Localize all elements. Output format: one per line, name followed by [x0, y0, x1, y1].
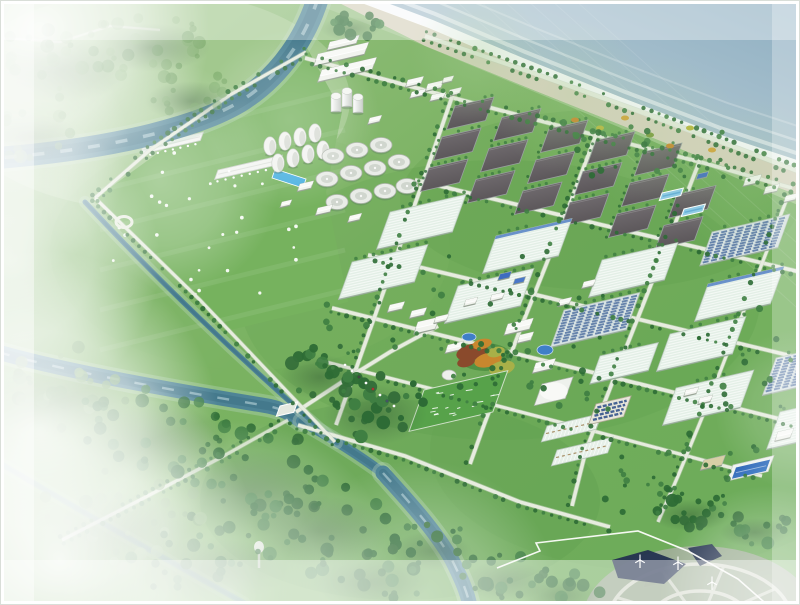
tree — [610, 295, 614, 299]
tree — [403, 218, 407, 222]
tree — [319, 431, 322, 434]
tree — [380, 251, 384, 255]
tree — [605, 406, 611, 412]
tree — [517, 208, 520, 211]
tree — [544, 249, 549, 254]
tree — [666, 450, 672, 456]
tree — [329, 310, 332, 313]
tree — [676, 465, 679, 468]
tree — [728, 275, 732, 279]
tree — [384, 272, 388, 276]
tree — [575, 303, 579, 307]
tree — [526, 296, 530, 300]
tree — [700, 404, 705, 409]
tree — [420, 270, 425, 275]
tree — [724, 475, 728, 479]
car — [379, 394, 382, 397]
tree — [478, 277, 482, 281]
tree — [496, 374, 500, 378]
tree — [578, 379, 583, 384]
tree — [484, 348, 489, 353]
tree — [367, 318, 371, 322]
tree — [585, 397, 590, 402]
tree — [496, 348, 501, 353]
tree — [431, 287, 436, 292]
tree — [331, 366, 335, 370]
tree — [655, 511, 660, 516]
tree — [354, 257, 358, 261]
tree — [537, 419, 541, 423]
tree — [604, 255, 608, 259]
tree — [376, 371, 386, 381]
tree — [584, 301, 588, 305]
tree — [486, 275, 490, 279]
clarifier-hub — [384, 190, 386, 192]
clarifier-hub — [406, 185, 408, 187]
tree — [374, 79, 379, 84]
tree — [623, 233, 627, 237]
clarifier-hub — [380, 144, 382, 146]
tree — [363, 322, 370, 329]
tree — [756, 305, 763, 312]
tree — [394, 381, 399, 386]
tree — [666, 494, 679, 507]
tree — [618, 317, 623, 322]
tree — [677, 396, 681, 400]
tree — [308, 419, 312, 423]
tree — [670, 515, 679, 524]
tree — [322, 363, 327, 368]
tree — [651, 266, 656, 271]
tree — [416, 243, 420, 247]
tree — [573, 187, 576, 190]
tree — [309, 344, 318, 353]
tree — [521, 415, 525, 419]
clarifier-hub — [336, 201, 338, 203]
clarifier-hub — [360, 195, 362, 197]
tree — [354, 430, 367, 443]
tree — [565, 196, 570, 201]
tree — [338, 344, 343, 349]
tree — [680, 492, 684, 496]
tree — [478, 421, 482, 425]
tree — [554, 227, 558, 231]
tree — [422, 176, 425, 179]
tree — [352, 444, 356, 448]
tree — [465, 400, 468, 403]
tree — [388, 391, 401, 404]
tree — [697, 412, 702, 417]
tree — [196, 301, 199, 304]
tree — [541, 363, 545, 367]
tree — [612, 380, 617, 385]
tree — [432, 152, 435, 155]
tree — [650, 325, 654, 329]
clarifier-hub — [398, 161, 400, 163]
tree — [579, 367, 586, 374]
tree — [679, 458, 682, 461]
tree — [625, 208, 628, 211]
tree — [356, 348, 361, 353]
tree — [548, 300, 552, 304]
tree — [469, 196, 472, 199]
tree — [657, 491, 663, 497]
tree — [424, 170, 427, 173]
tree — [499, 366, 503, 370]
tree — [505, 410, 509, 414]
tree — [355, 372, 358, 375]
tree — [681, 332, 685, 336]
tree — [509, 353, 513, 357]
tree — [628, 291, 632, 295]
tree — [711, 465, 716, 470]
tree — [727, 469, 731, 473]
aerial-rendering — [0, 0, 800, 605]
tree — [530, 380, 534, 384]
tree — [509, 206, 512, 209]
tree — [540, 298, 544, 302]
clarifier-hub — [374, 167, 376, 169]
tree — [628, 345, 632, 349]
tree — [481, 413, 486, 418]
tree — [625, 442, 629, 446]
tree — [556, 303, 560, 307]
tree — [444, 189, 449, 194]
tree — [532, 296, 537, 301]
car — [365, 382, 368, 385]
tree — [398, 422, 408, 432]
tree — [571, 193, 574, 196]
tree — [326, 325, 333, 332]
tree — [605, 236, 608, 239]
tree — [657, 243, 661, 247]
tree — [612, 364, 616, 368]
tree — [619, 454, 624, 459]
tree — [633, 444, 636, 447]
tree — [641, 288, 646, 293]
tree — [405, 210, 409, 214]
tree — [612, 216, 615, 219]
tree — [288, 421, 292, 425]
tree — [721, 351, 725, 355]
tree — [597, 376, 602, 381]
tree — [706, 339, 709, 342]
tree — [393, 76, 396, 79]
tree — [574, 221, 577, 224]
tree — [513, 413, 517, 417]
tree — [337, 312, 340, 315]
fog-edge-left — [0, 0, 34, 605]
tree — [376, 416, 390, 430]
tree — [742, 313, 746, 317]
tree — [360, 317, 365, 322]
tree — [763, 267, 767, 271]
tree — [323, 319, 330, 326]
tree — [346, 351, 350, 355]
tree — [444, 160, 447, 163]
tree — [592, 193, 595, 196]
tree — [565, 369, 568, 372]
tree — [739, 260, 743, 264]
tree — [489, 365, 495, 371]
tree — [462, 191, 466, 195]
tree — [490, 376, 494, 380]
tree — [489, 407, 492, 410]
tree — [686, 431, 693, 438]
tree — [733, 319, 738, 324]
tree — [441, 394, 445, 398]
tree — [654, 258, 659, 263]
tree — [636, 303, 641, 308]
tree — [578, 455, 582, 459]
fog-patch — [200, 30, 380, 210]
tree — [495, 273, 499, 277]
tree — [615, 357, 618, 360]
tree — [573, 371, 576, 374]
tree — [631, 235, 634, 238]
tree — [414, 331, 418, 335]
tree — [344, 313, 349, 318]
tree — [520, 311, 525, 316]
tree — [513, 269, 517, 273]
tree — [629, 384, 633, 388]
tree — [354, 356, 358, 360]
tree — [540, 213, 545, 218]
tree — [515, 327, 518, 330]
tree — [557, 219, 562, 224]
tree — [528, 288, 535, 295]
tree — [661, 392, 664, 395]
tree — [549, 364, 553, 368]
tree — [545, 420, 550, 425]
tree — [431, 336, 434, 339]
tree — [697, 336, 701, 340]
tree — [618, 205, 621, 208]
tree — [672, 455, 676, 459]
tree — [648, 239, 652, 243]
tree — [407, 330, 411, 334]
tree — [497, 143, 500, 146]
fog-edge-right — [772, 0, 800, 605]
tree — [457, 398, 461, 402]
tree — [720, 467, 724, 471]
tree — [427, 148, 431, 152]
tree — [291, 401, 295, 405]
tree — [571, 198, 574, 201]
tree — [474, 382, 478, 386]
tree — [309, 391, 316, 398]
tree — [408, 202, 413, 207]
tree — [394, 456, 398, 460]
car — [372, 388, 375, 391]
tree — [437, 139, 440, 142]
tree — [579, 307, 584, 312]
tree — [526, 175, 529, 178]
tree — [438, 338, 441, 341]
tree — [548, 242, 553, 247]
tree — [505, 350, 509, 354]
tree — [368, 69, 372, 73]
tree — [418, 397, 428, 407]
tree — [395, 241, 399, 245]
tree — [652, 476, 656, 480]
tree — [594, 409, 599, 414]
tree — [610, 222, 613, 225]
tree — [493, 382, 498, 387]
tree — [706, 389, 710, 393]
tree — [713, 254, 718, 259]
tree — [685, 398, 689, 402]
tree — [673, 473, 676, 476]
tree — [672, 486, 677, 491]
tree — [645, 388, 650, 393]
tree — [658, 481, 663, 486]
tree — [446, 339, 450, 343]
tree — [562, 203, 567, 208]
tree — [601, 294, 605, 298]
tree — [730, 258, 734, 262]
tree — [302, 429, 307, 434]
tree — [695, 498, 701, 504]
tree — [488, 301, 493, 306]
tree — [524, 209, 529, 214]
tree — [577, 296, 582, 301]
tree — [550, 513, 553, 516]
tree — [382, 81, 387, 86]
tree — [277, 419, 280, 422]
tree — [601, 395, 604, 398]
tree — [245, 353, 250, 358]
tree — [464, 201, 467, 204]
tree — [681, 510, 687, 516]
tree — [714, 340, 717, 343]
tree — [524, 187, 527, 190]
tree — [657, 234, 660, 237]
tree — [469, 281, 474, 286]
tree — [665, 216, 668, 219]
tree — [715, 366, 719, 370]
tree — [688, 458, 693, 463]
tree — [399, 86, 403, 90]
tree — [561, 425, 565, 429]
tree — [472, 401, 477, 406]
tree — [660, 243, 664, 247]
tree — [709, 381, 714, 386]
tree — [268, 377, 273, 382]
tree — [625, 335, 628, 338]
tree — [350, 365, 354, 369]
tree — [725, 317, 729, 321]
tree — [530, 265, 534, 269]
tree — [522, 267, 526, 271]
tree — [398, 247, 402, 251]
tree — [484, 405, 489, 410]
tree — [491, 344, 495, 348]
tree — [542, 257, 545, 260]
tree — [755, 265, 759, 269]
garden-pond — [537, 345, 553, 355]
tree — [359, 341, 363, 345]
tree — [341, 389, 345, 393]
tree — [401, 205, 405, 209]
tree — [390, 337, 395, 342]
tree — [517, 319, 521, 323]
tree — [545, 182, 548, 185]
tree — [589, 224, 594, 229]
tree — [452, 191, 457, 196]
tree — [376, 71, 381, 76]
tree — [407, 89, 410, 92]
tree — [368, 448, 373, 453]
tree — [302, 414, 305, 417]
tree — [377, 450, 382, 455]
tree — [662, 495, 666, 499]
tree — [540, 385, 546, 391]
tree — [684, 442, 689, 447]
tree — [501, 353, 505, 357]
tree — [607, 229, 610, 232]
tree — [542, 511, 546, 515]
tree — [324, 301, 330, 307]
tree — [425, 156, 429, 160]
tree — [477, 125, 480, 128]
tree — [470, 126, 473, 129]
tree — [648, 245, 652, 249]
tree — [620, 509, 626, 515]
tree — [535, 272, 540, 277]
tree — [279, 389, 283, 393]
tree — [525, 359, 529, 363]
tree — [361, 446, 365, 450]
tree — [656, 450, 661, 455]
tree — [397, 233, 402, 238]
tree — [645, 281, 650, 286]
tree — [430, 164, 433, 167]
tree — [397, 264, 402, 269]
tree — [207, 313, 211, 317]
tree — [212, 318, 217, 323]
tree — [569, 427, 572, 430]
tree — [724, 343, 728, 347]
tree — [580, 447, 584, 451]
tree — [743, 474, 747, 478]
tree — [517, 293, 521, 297]
tree — [339, 368, 343, 372]
tree — [399, 327, 404, 332]
tree — [462, 373, 466, 377]
tree — [601, 435, 606, 440]
tree — [703, 463, 708, 468]
tree — [490, 144, 493, 147]
tree — [497, 409, 500, 412]
garden-pond — [462, 333, 476, 341]
tree — [704, 377, 708, 381]
tree — [435, 145, 438, 148]
field-dot — [294, 224, 298, 228]
tree — [574, 471, 578, 475]
tree — [418, 388, 422, 392]
tree — [414, 187, 418, 191]
tree — [558, 515, 562, 519]
tree — [664, 485, 671, 492]
tree — [485, 200, 489, 204]
car — [344, 364, 347, 367]
tree — [501, 358, 506, 363]
tree — [410, 380, 417, 387]
tree — [623, 477, 630, 484]
tree — [352, 316, 356, 320]
tree — [566, 518, 569, 521]
